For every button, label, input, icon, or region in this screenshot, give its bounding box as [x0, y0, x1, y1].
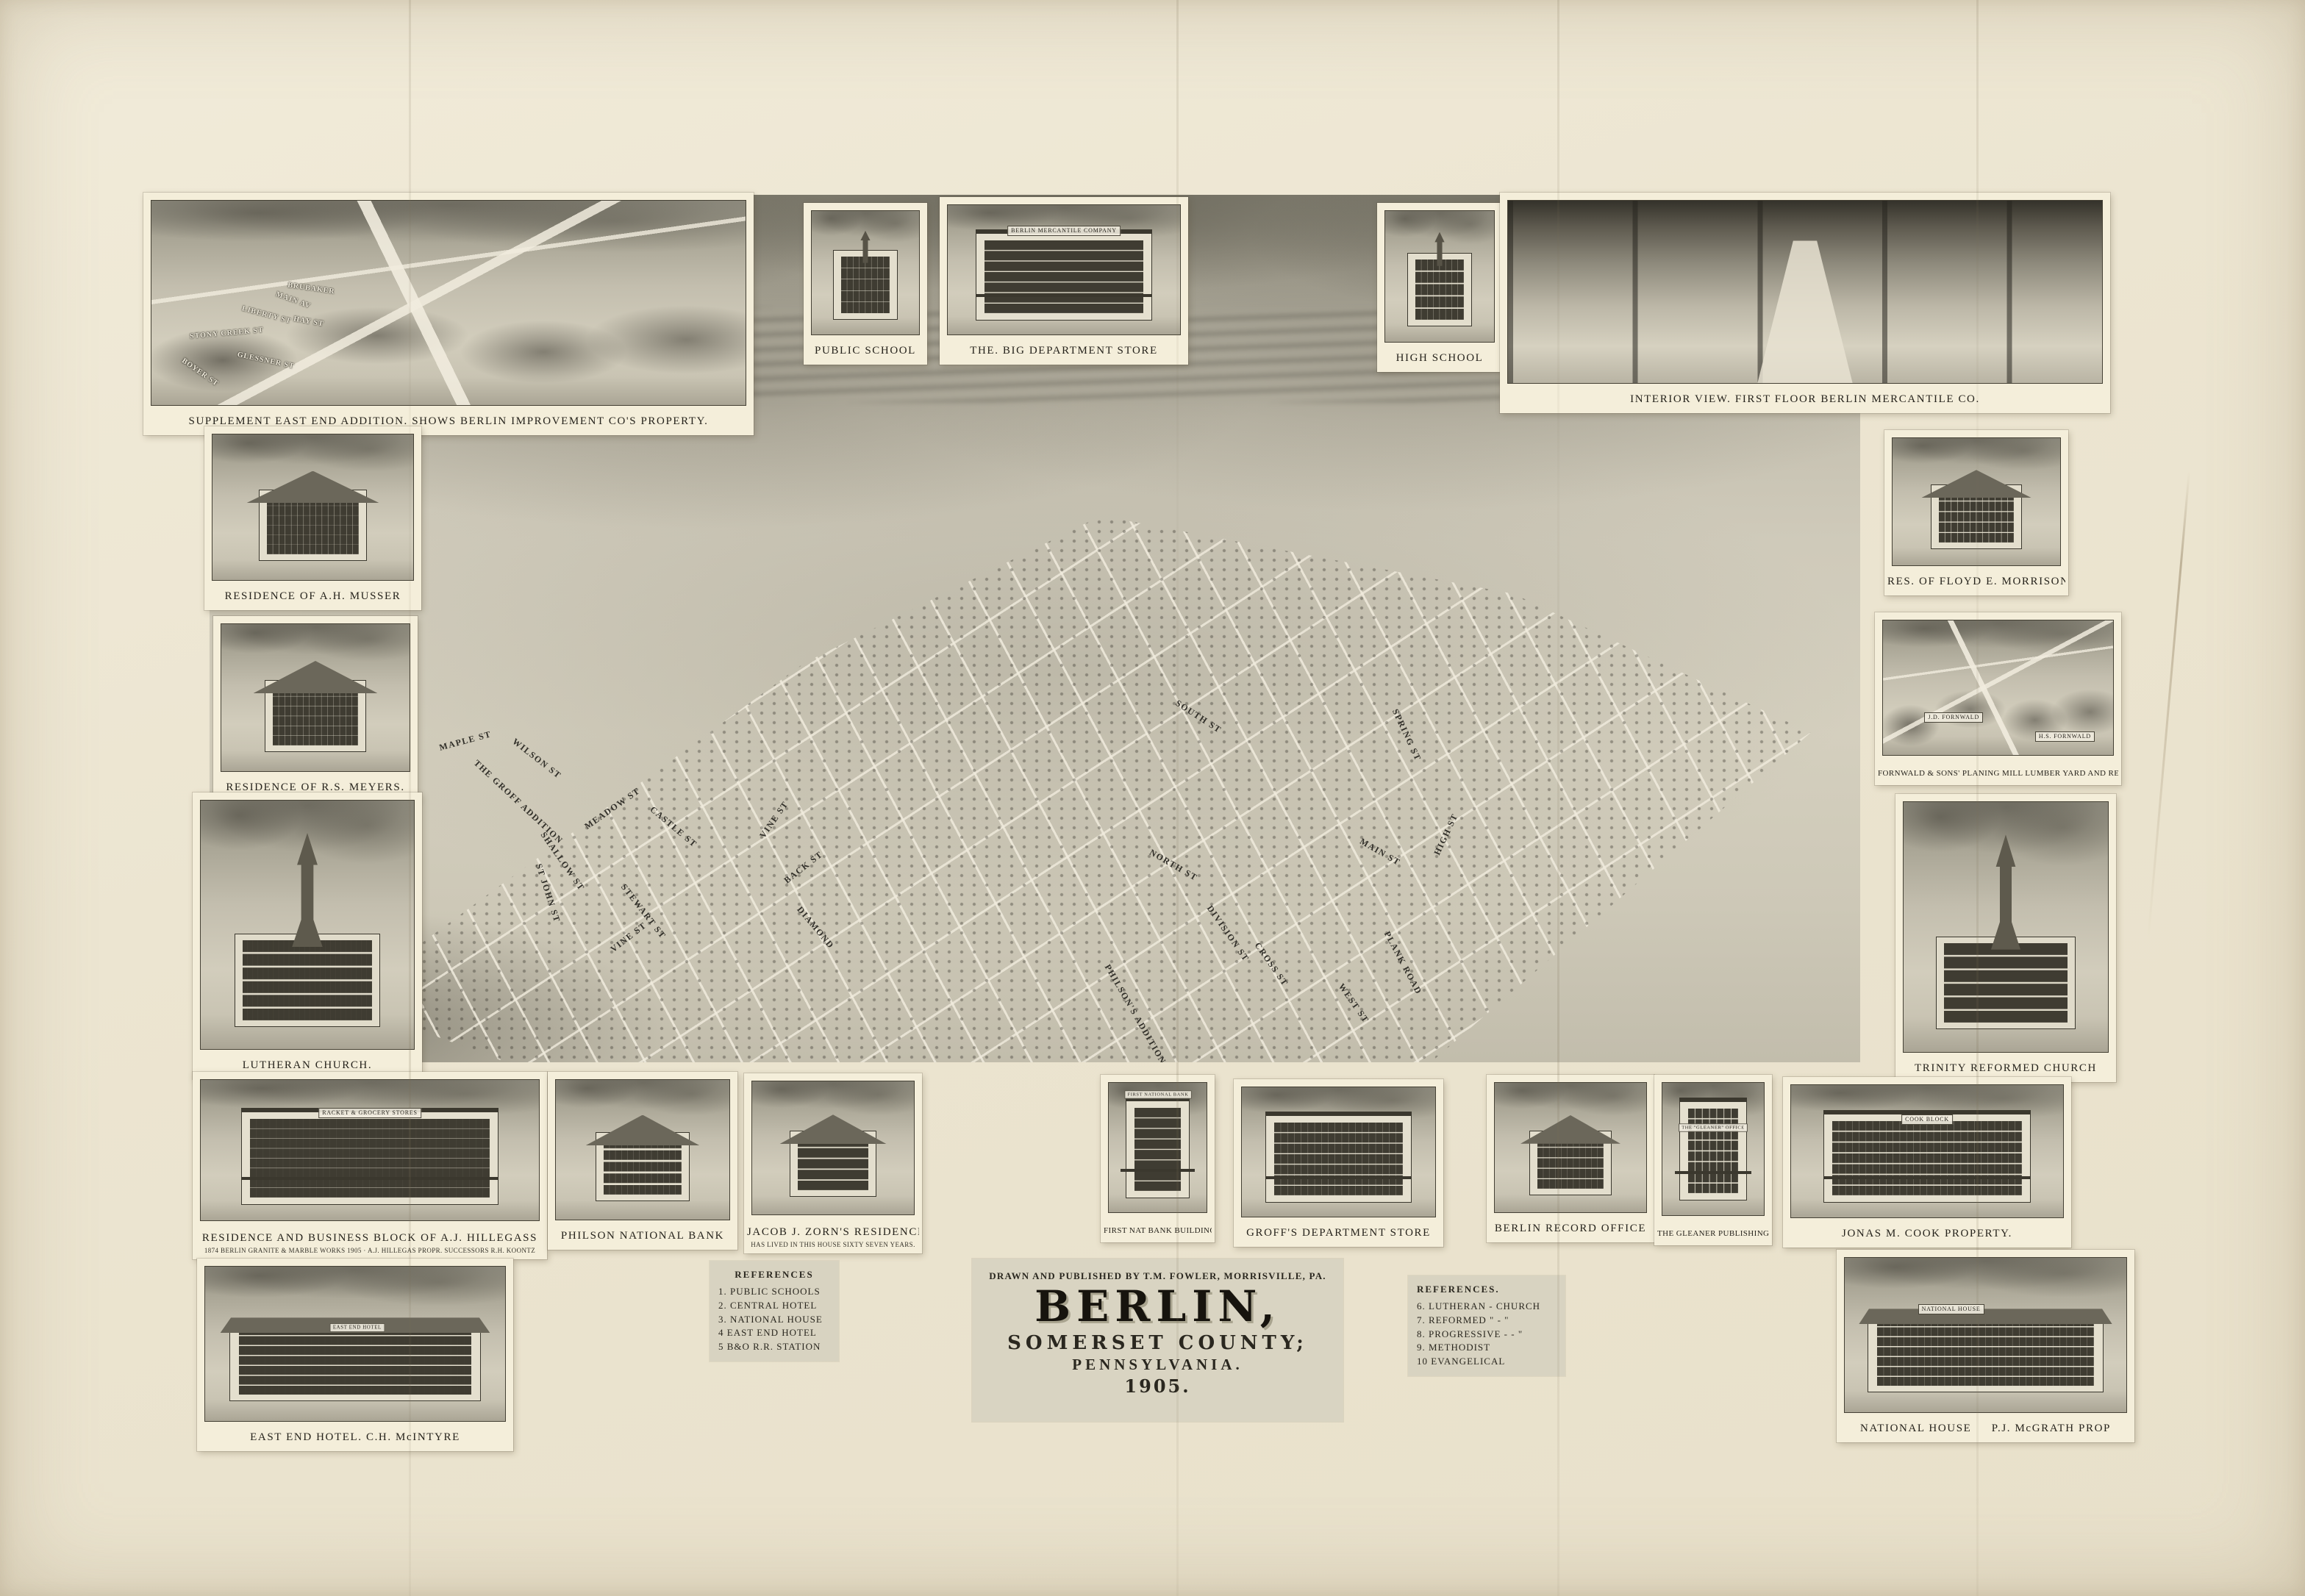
map-year: 1905. [972, 1375, 1343, 1397]
street-label-vine-st-upper: VINE ST [757, 798, 791, 840]
building-sign: FIRST NATIONAL BANK [1124, 1090, 1191, 1098]
vignette-high-school: HIGH SCHOOL [1377, 203, 1502, 372]
building-sign: COOK BLOCK [1901, 1114, 1953, 1125]
building-sign: H.S. FORNWALD [2035, 731, 2095, 742]
vignette-residence-musser: RESIDENCE OF A.H. MUSSER [204, 426, 421, 610]
map-subtitle-state: PENNSYLVANIA. [972, 1356, 1343, 1374]
reference-item: 5 B&O R.R. STATION [718, 1340, 830, 1354]
references-heading: REFERENCES [718, 1268, 830, 1282]
vignette-east-end-hotel: EAST END HOTEL EAST END HOTEL. C.H. McIN… [197, 1259, 513, 1451]
street-label-north-st: NORTH ST [1148, 847, 1200, 884]
references-box-right: REFERENCES. 6. LUTHERAN - CHURCH 7. REFO… [1408, 1275, 1565, 1376]
street-label-back-st: BACK ST [782, 848, 826, 886]
paper-crack [2147, 471, 2190, 940]
vignette-caption: NATIONAL HOUSE P.J. McGRATH PROP [1840, 1423, 2131, 1435]
vignette-caption: FORNWALD & SONS' PLANING MILL LUMBER YAR… [1878, 769, 2118, 778]
vignette-caption: PHILSON NATIONAL BANK [551, 1230, 735, 1242]
street-label-glessner-st: GLESSNER ST [237, 351, 296, 371]
vignette-lutheran-church: LUTHERAN CHURCH. [193, 792, 422, 1079]
national-house-art: NATIONAL HOUSE [1844, 1257, 2127, 1413]
east-end-hotel-art: EAST END HOTEL [204, 1266, 506, 1422]
building-sign: RACKET & GROCERY STORES [318, 1108, 421, 1118]
vignette-gleaner-publishing: THE "GLEANER" OFFICE THE GLEANER PUBLISH… [1654, 1075, 1772, 1245]
vignette-jonas-cook-property: COOK BLOCK JONAS M. COOK PROPERTY. [1783, 1077, 2071, 1248]
lutheran-church-art [200, 800, 415, 1050]
vignette-caption: INTERIOR VIEW. FIRST FLOOR BERLIN MERCAN… [1503, 393, 2107, 406]
hillegass-block-art: RACKET & GROCERY STORES [200, 1079, 540, 1221]
street-label-philsons-addition: PHILSON'S ADDITION [1102, 962, 1168, 1062]
street-label-main-st: MAIN ST [1357, 837, 1402, 869]
street-label-hay-st: HAY ST [293, 315, 324, 329]
meyers-residence-art [221, 623, 410, 772]
gleaner-publishing-art: THE "GLEANER" OFFICE [1662, 1082, 1765, 1216]
paper-sheet: MAPLE ST WILSON ST THE GROFF ADDITION ME… [0, 0, 2305, 1596]
vignette-caption: EAST END HOTEL. C.H. McINTYRE [200, 1431, 510, 1444]
philson-bank-art [555, 1079, 730, 1220]
vignette-residence-meyers: RESIDENCE OF R.S. MEYERS. [213, 616, 418, 801]
vignette-caption: RESIDENCE AND BUSINESS BLOCK OF A.J. HIL… [196, 1232, 544, 1245]
building-sign: THE "GLEANER" OFFICE [1679, 1123, 1748, 1131]
street-label-high-st: HIGH ST [1432, 812, 1460, 856]
publisher-credit: DRAWN AND PUBLISHED BY T.M. FOWLER, MORR… [972, 1270, 1343, 1282]
street-label-plank-road: PLANK ROAD [1382, 930, 1424, 997]
street-label-maple-st: MAPLE ST [438, 729, 493, 754]
morrison-residence-art [1892, 437, 2061, 566]
vignette-note: HAS LIVED IN THIS HOUSE SIXTY SEVEN YEAR… [747, 1241, 919, 1248]
musser-residence-art [212, 434, 414, 581]
building-sign: EAST END HOTEL [330, 1323, 385, 1332]
groff-store-art [1241, 1087, 1436, 1217]
street-label-stony-creek: STONY CREEK ST [189, 326, 263, 341]
reference-item: 4 EAST END HOTEL [718, 1326, 830, 1340]
high-school-art [1384, 210, 1495, 343]
building-sign: J.D. FORNWALD [1924, 712, 1983, 723]
street-label-liberty-st: LIBERTY ST [241, 304, 293, 325]
vignette-caption: HIGH SCHOOL [1380, 352, 1499, 365]
vignette-caption: THE. BIG DEPARTMENT STORE [943, 345, 1185, 357]
vignette-note: 1874 BERLIN GRANITE & MARBLE WORKS 1905 … [196, 1247, 544, 1254]
vignette-caption: RESIDENCE OF A.H. MUSSER [207, 590, 418, 603]
vignette-trinity-reformed-church: TRINITY REFORMED CHURCH [1895, 794, 2116, 1082]
vignette-big-department-store: BERLIN MERCANTILE COMPANY THE. BIG DEPAR… [940, 197, 1188, 365]
public-school-art [811, 210, 920, 335]
vignette-caption: FIRST NAT BANK BUILDING [1104, 1226, 1212, 1235]
zorn-residence-art [751, 1081, 915, 1215]
berlin-record-art [1494, 1082, 1647, 1213]
street-label-spring-st: SPRING ST [1390, 707, 1423, 763]
vignette-caption: TRINITY REFORMED CHURCH [1898, 1062, 2113, 1075]
cook-block-art: COOK BLOCK [1790, 1084, 2064, 1218]
reference-item: 10 EVANGELICAL [1417, 1355, 1557, 1369]
vignette-zorn-residence: JACOB J. ZORN'S RESIDENCE HAS LIVED IN T… [744, 1073, 922, 1253]
vignette-national-house: NATIONAL HOUSE NATIONAL HOUSE P.J. McGRA… [1837, 1250, 2134, 1442]
fornwald-mill-art: J.D. FORNWALD H.S. FORNWALD [1882, 620, 2114, 756]
reference-item: 7. REFORMED " - " [1417, 1314, 1557, 1328]
reference-item: 1. PUBLIC SCHOOLS [718, 1285, 830, 1299]
building-sign: BERLIN MERCANTILE COMPANY [1007, 226, 1121, 236]
trinity-reformed-art [1903, 801, 2109, 1053]
vignette-groff-department-store: GROFF'S DEPARTMENT STORE [1234, 1079, 1443, 1247]
references-box-left: REFERENCES 1. PUBLIC SCHOOLS 2. CENTRAL … [710, 1261, 839, 1361]
references-heading: REFERENCES. [1417, 1283, 1557, 1297]
big-department-store-art: BERLIN MERCANTILE COMPANY [947, 204, 1181, 335]
reference-item: 6. LUTHERAN - CHURCH [1417, 1300, 1557, 1314]
street-label-boyer-st: BOYER ST [180, 357, 220, 387]
vignette-residence-morrison: RES. OF FLOYD E. MORRISON. [1884, 430, 2068, 595]
street-label-cross-st: CROSS ST [1251, 940, 1290, 989]
reference-item: 9. METHODIST [1417, 1341, 1557, 1355]
reference-item: 3. NATIONAL HOUSE [718, 1313, 830, 1327]
fowler-berlin-1905-map-sheet: { "palette":{"paper":"#ece5d1","mat":"#f… [0, 0, 2305, 1596]
vignette-fornwald-planing-mill: J.D. FORNWALD H.S. FORNWALD FORNWALD & S… [1875, 612, 2121, 785]
reference-item: 2. CENTRAL HOTEL [718, 1299, 830, 1313]
vignette-philson-national-bank: PHILSON NATIONAL BANK [548, 1072, 737, 1250]
vignette-caption: RES. OF FLOYD E. MORRISON. [1887, 576, 2065, 588]
vignette-caption: BERLIN RECORD OFFICE [1490, 1223, 1651, 1235]
street-label-meadow-st: MEADOW ST [582, 786, 642, 832]
street-label-south-st: SOUTH ST [1173, 698, 1223, 737]
street-label-main-av: MAIN AV [275, 290, 312, 310]
street-label-diamond: DIAMOND [795, 904, 837, 951]
street-label-castle-st: CASTLE ST [648, 804, 699, 850]
map-title: BERLIN, [972, 1285, 1343, 1328]
street-label-brubaker: BRUBAKER [287, 282, 336, 296]
street-label-division-st: DIVISION ST [1204, 903, 1251, 964]
interior-view-art [1507, 200, 2103, 384]
street-label-west-st: WEST ST [1336, 981, 1371, 1026]
supplement-east-end-art: STONY CREEK ST LIBERTY ST HAY ST GLESSNE… [151, 200, 746, 406]
vignette-interior-berlin-mercantile: INTERIOR VIEW. FIRST FLOOR BERLIN MERCAN… [1500, 193, 2110, 413]
vignette-caption: JACOB J. ZORN'S RESIDENCE [747, 1226, 919, 1239]
vignette-hillegass-block: RACKET & GROCERY STORES RESIDENCE AND BU… [193, 1072, 547, 1259]
reference-item: 8. PROGRESSIVE - - " [1417, 1328, 1557, 1342]
vignette-public-school: PUBLIC SCHOOL [804, 203, 927, 365]
vignette-berlin-record-office: BERLIN RECORD OFFICE [1487, 1075, 1654, 1242]
title-cartouche: DRAWN AND PUBLISHED BY T.M. FOWLER, MORR… [972, 1259, 1343, 1422]
vignette-caption: LUTHERAN CHURCH. [196, 1059, 419, 1072]
street-label-st-john-st: ST JOHN ST [533, 862, 562, 924]
map-subtitle-county: SOMERSET COUNTY; [972, 1332, 1343, 1354]
street-label-vine-st-lower: VINE ST [609, 920, 649, 955]
building-sign: NATIONAL HOUSE [1918, 1304, 1984, 1314]
vignette-caption: JONAS M. COOK PROPERTY. [1786, 1228, 2068, 1240]
street-label-wilson-st: WILSON ST [510, 736, 563, 781]
vignette-caption: PUBLIC SCHOOL [807, 345, 924, 357]
vignette-supplement-east-end: STONY CREEK ST LIBERTY ST HAY ST GLESSNE… [143, 193, 754, 435]
vignette-caption: THE GLEANER PUBLISHING CO. [1657, 1229, 1769, 1238]
vignette-first-national-bank: FIRST NATIONAL BANK FIRST NAT BANK BUILD… [1101, 1075, 1215, 1242]
vignette-caption: GROFF'S DEPARTMENT STORE [1237, 1227, 1440, 1239]
first-national-bank-art: FIRST NATIONAL BANK [1108, 1082, 1207, 1213]
